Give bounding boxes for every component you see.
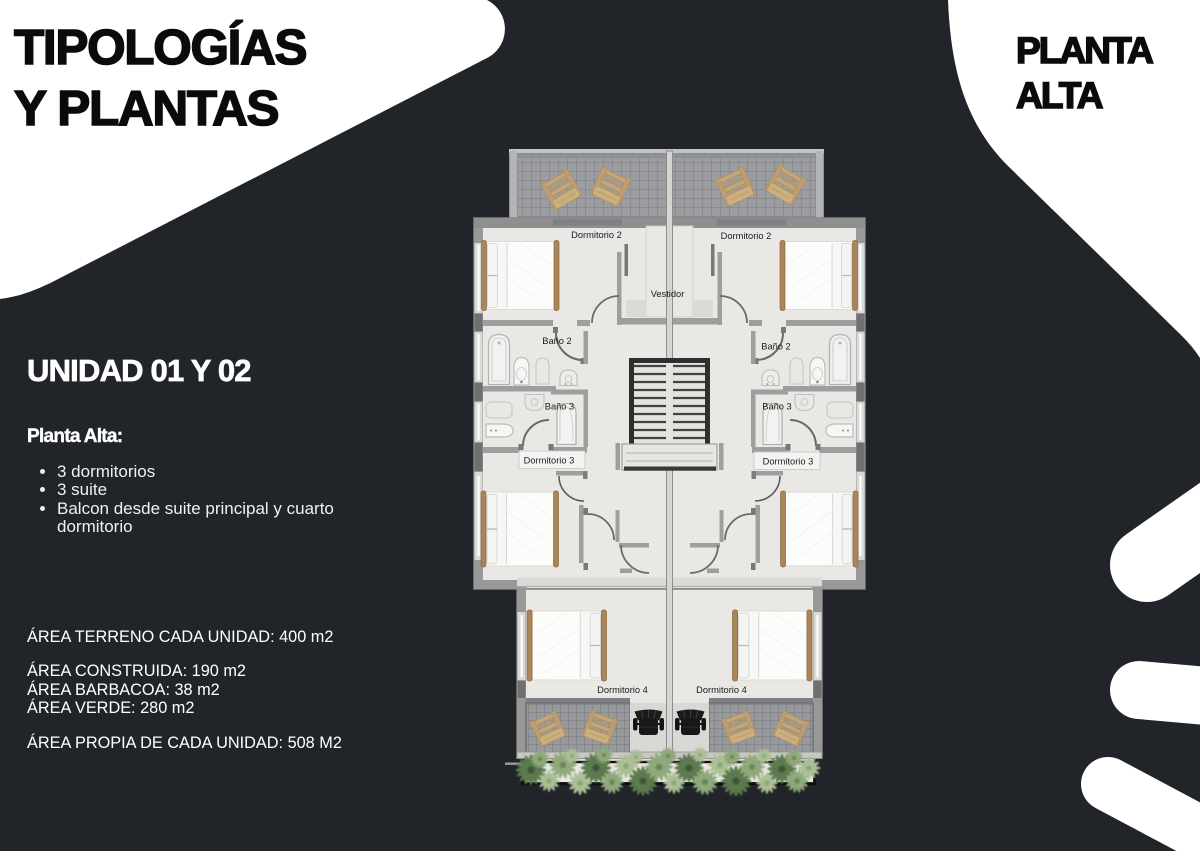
svg-text:Baño 2: Baño 2 — [542, 336, 571, 346]
svg-text:Baño 3: Baño 3 — [762, 402, 791, 412]
svg-text:Dormitorio 4: Dormitorio 4 — [696, 685, 747, 695]
svg-text:Baño 2: Baño 2 — [761, 342, 790, 352]
svg-text:Baño 3: Baño 3 — [545, 402, 574, 412]
svg-text:Dormitorio 3: Dormitorio 3 — [763, 457, 814, 467]
svg-text:Dormitorio 2: Dormitorio 2 — [721, 231, 772, 241]
svg-text:Dormitorio 2: Dormitorio 2 — [571, 230, 622, 240]
svg-text:Vestidor: Vestidor — [651, 289, 685, 299]
svg-text:Dormitorio 4: Dormitorio 4 — [597, 685, 648, 695]
svg-text:Dormitorio 3: Dormitorio 3 — [524, 456, 575, 466]
